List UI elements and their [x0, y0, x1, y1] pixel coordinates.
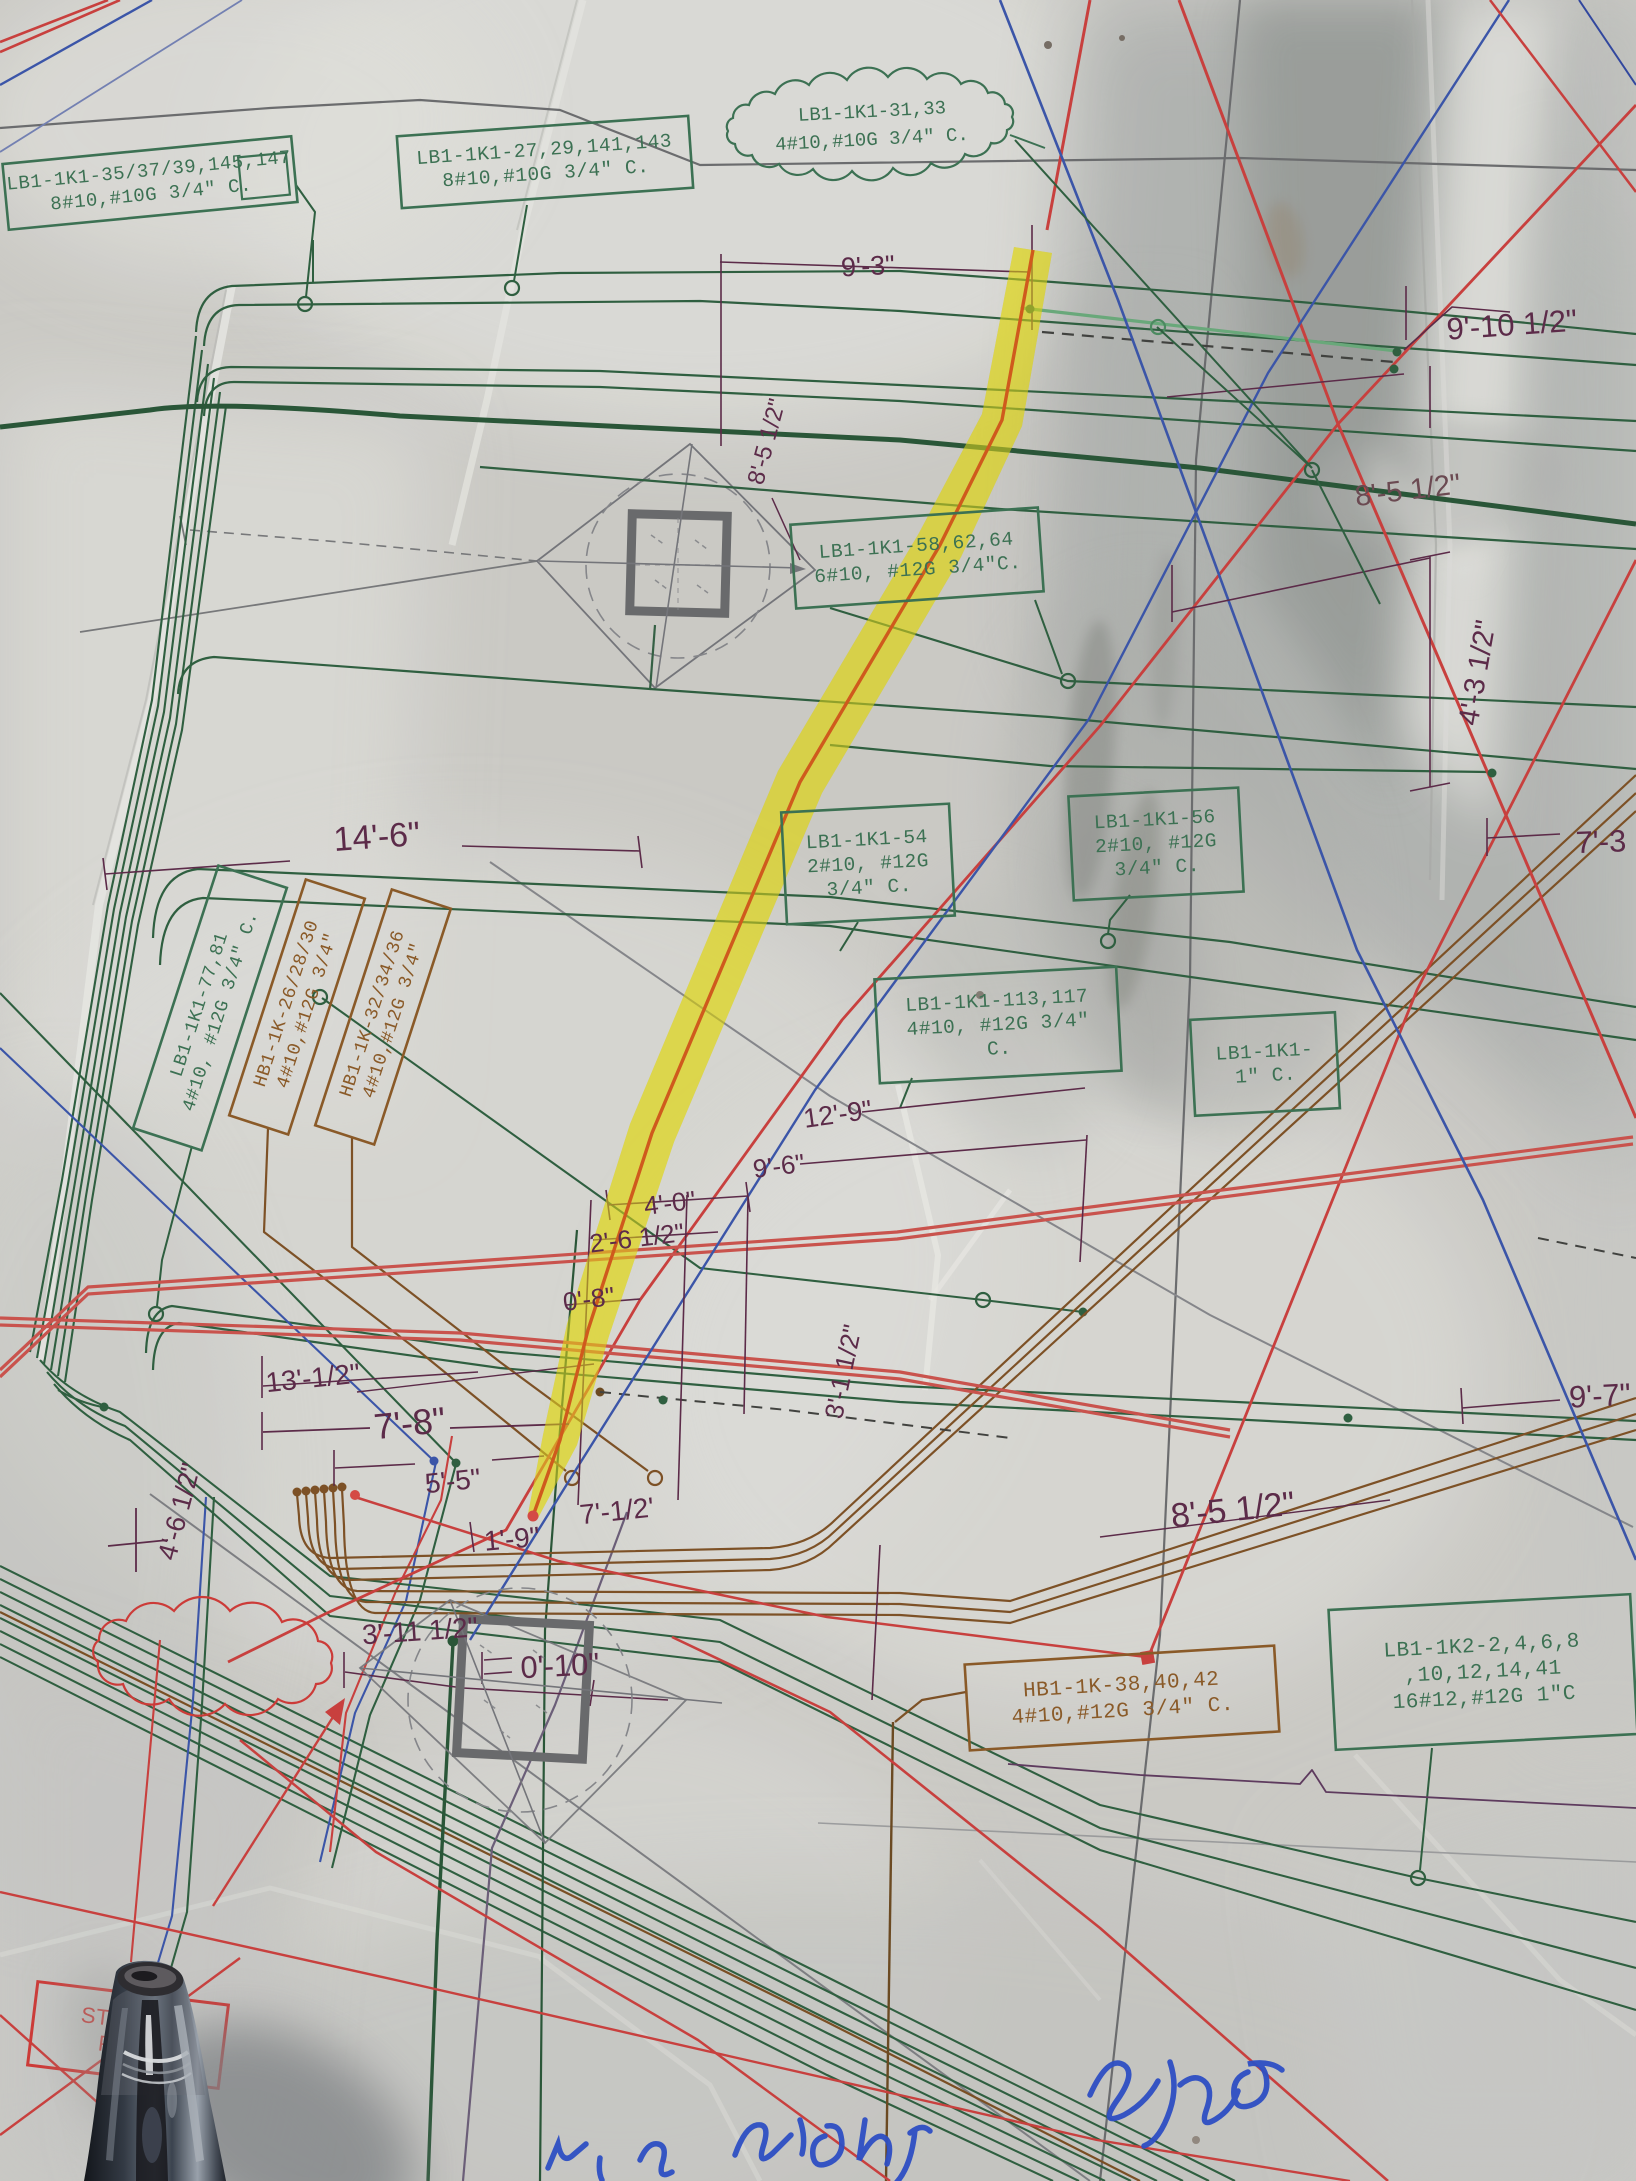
svg-text:3/4" C.: 3/4" C.	[826, 875, 912, 901]
svg-text:4'-0": 4'-0"	[642, 1185, 697, 1221]
svg-text:14'-6": 14'-6"	[332, 815, 421, 859]
svg-text:5'-5": 5'-5"	[423, 1463, 482, 1500]
svg-text:9'-6": 9'-6"	[751, 1148, 806, 1184]
svg-text:C.: C.	[987, 1037, 1013, 1060]
svg-text:9'-3": 9'-3"	[840, 250, 895, 283]
svg-text:7'-3: 7'-3	[1575, 823, 1627, 860]
svg-text:9'-7": 9'-7"	[1568, 1377, 1631, 1415]
svg-text:0'-8": 0'-8"	[561, 1281, 616, 1317]
svg-text:1'-9": 1'-9"	[483, 1521, 541, 1557]
svg-text:7'-8": 7'-8"	[372, 1399, 448, 1447]
svg-text:3/4" C.: 3/4" C.	[1114, 855, 1200, 881]
svg-text:0'-10": 0'-10"	[520, 1646, 601, 1685]
svg-text:1" C.: 1" C.	[1235, 1064, 1297, 1089]
